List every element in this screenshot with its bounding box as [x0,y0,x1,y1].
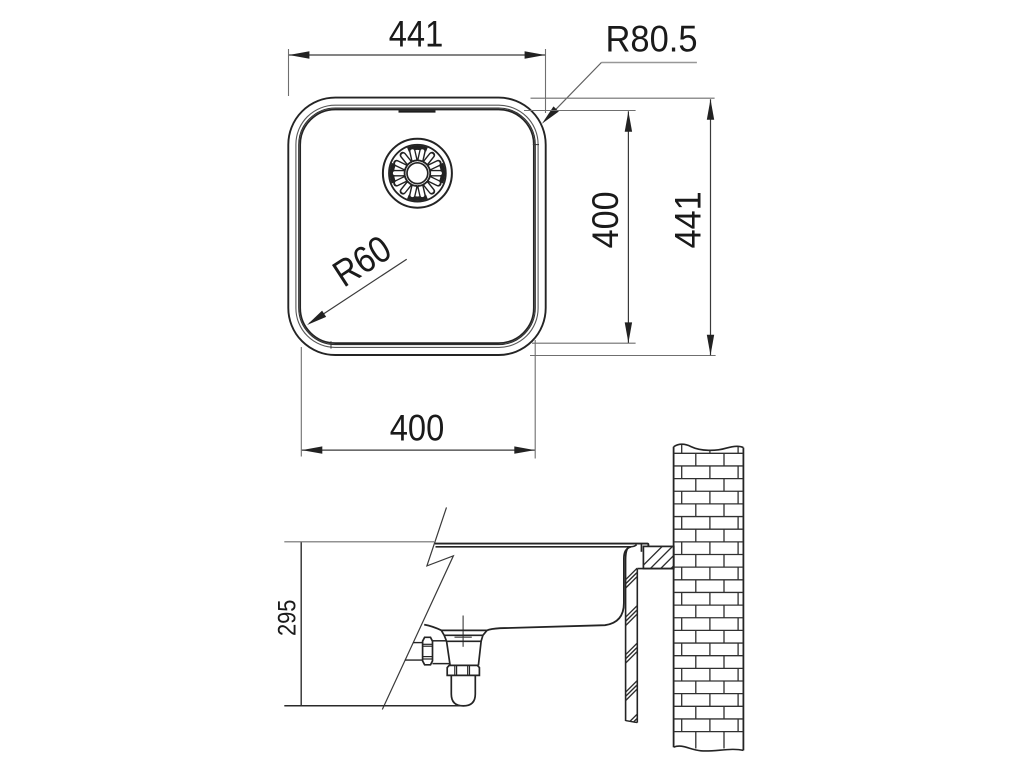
svg-text:400: 400 [390,406,445,448]
svg-text:295: 295 [273,600,301,637]
svg-text:400: 400 [584,191,626,248]
svg-text:R80.5: R80.5 [606,17,698,59]
svg-text:441: 441 [389,12,444,54]
svg-text:441: 441 [667,191,709,248]
